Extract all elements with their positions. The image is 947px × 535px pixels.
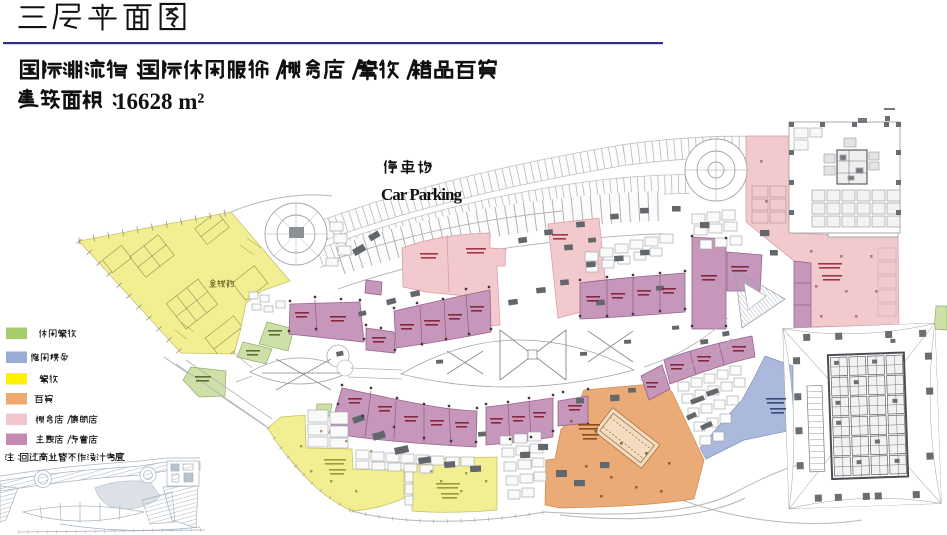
svg-text:Car Parking: Car Parking xyxy=(381,185,463,204)
svg-text:16628 m²: 16628 m² xyxy=(115,89,204,114)
